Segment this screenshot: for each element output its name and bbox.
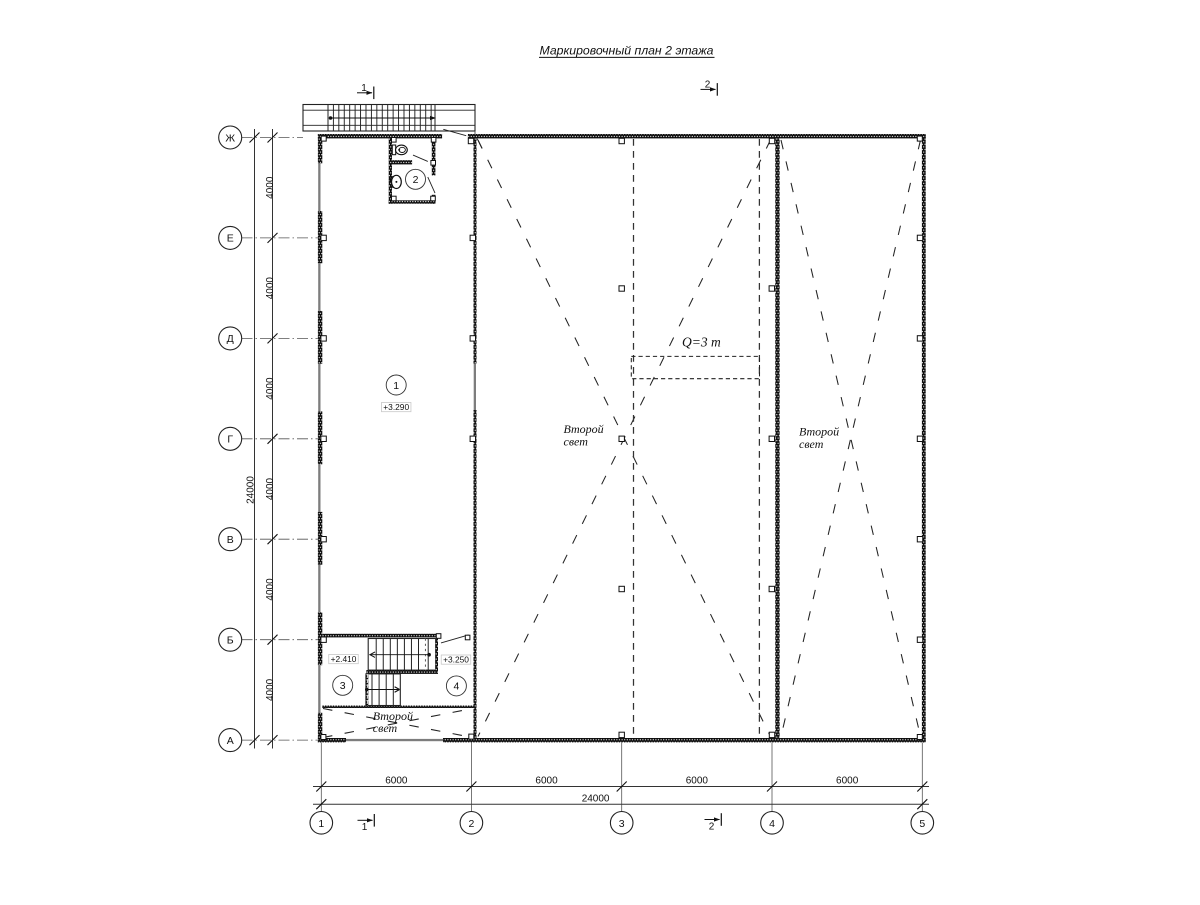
- svg-text:Ж: Ж: [225, 132, 235, 144]
- svg-text:Б: Б: [227, 635, 234, 647]
- svg-text:4000: 4000: [265, 377, 276, 400]
- svg-text:2: 2: [709, 821, 715, 832]
- svg-text:Д: Д: [227, 333, 234, 345]
- svg-text:6000: 6000: [385, 775, 408, 786]
- svg-text:1: 1: [361, 83, 367, 94]
- svg-text:свет: свет: [373, 721, 398, 735]
- svg-text:свет: свет: [564, 434, 589, 448]
- svg-text:свет: свет: [799, 437, 824, 451]
- svg-text:А: А: [227, 735, 234, 747]
- svg-text:3: 3: [619, 818, 625, 830]
- svg-text:1: 1: [362, 822, 368, 833]
- svg-text:4000: 4000: [265, 176, 276, 199]
- svg-text:2: 2: [413, 174, 419, 186]
- svg-text:24000: 24000: [245, 476, 256, 504]
- svg-text:+2.410: +2.410: [331, 654, 357, 664]
- svg-text:4: 4: [769, 818, 775, 830]
- svg-text:+3.290: +3.290: [383, 402, 409, 412]
- svg-text:Маркировочный план 2 этажа: Маркировочный план 2 этажа: [540, 43, 714, 57]
- svg-text:4000: 4000: [265, 578, 276, 601]
- svg-text:2: 2: [468, 818, 474, 830]
- svg-text:Е: Е: [227, 233, 234, 245]
- svg-text:6000: 6000: [686, 775, 709, 786]
- svg-text:Q=3 т: Q=3 т: [682, 335, 721, 350]
- svg-text:В: В: [227, 534, 234, 546]
- svg-text:3: 3: [340, 680, 346, 692]
- svg-text:+3.250: +3.250: [443, 655, 469, 665]
- svg-text:4: 4: [453, 681, 459, 693]
- svg-text:2: 2: [705, 79, 711, 90]
- svg-text:4000: 4000: [265, 477, 276, 500]
- svg-text:1: 1: [318, 818, 324, 830]
- svg-text:Г: Г: [227, 434, 233, 446]
- svg-text:1: 1: [393, 380, 399, 392]
- svg-text:4000: 4000: [265, 678, 276, 701]
- svg-text:24000: 24000: [582, 793, 610, 804]
- svg-text:6000: 6000: [535, 775, 558, 786]
- svg-text:6000: 6000: [836, 775, 859, 786]
- svg-text:4000: 4000: [265, 277, 276, 300]
- svg-text:5: 5: [919, 818, 925, 830]
